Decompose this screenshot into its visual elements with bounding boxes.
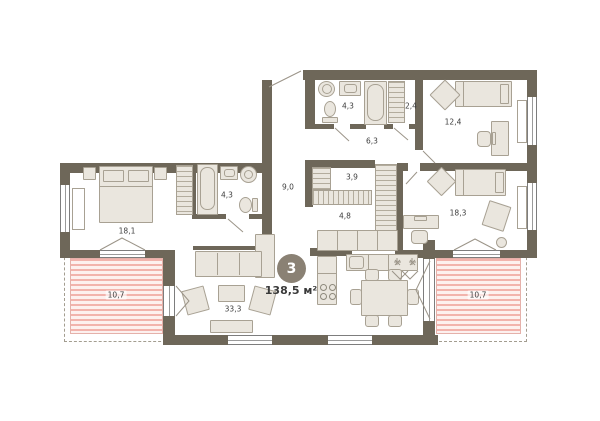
bathtub-basin	[200, 167, 215, 210]
radiator	[72, 188, 85, 230]
nightstand	[154, 167, 167, 180]
dining-chair	[388, 269, 402, 281]
room-label-storage: 2,4	[405, 102, 417, 111]
sofa-cushion-line	[217, 253, 218, 275]
pillow	[128, 170, 149, 182]
toilet-bowl	[324, 101, 336, 117]
pillow	[103, 170, 124, 182]
sofa	[195, 251, 262, 277]
cabinet-divider	[377, 231, 378, 250]
room-label-wardrobe: 3,9	[346, 173, 358, 182]
desk-chair	[477, 131, 491, 147]
storage-shelves	[388, 81, 405, 123]
balcony-door	[100, 250, 145, 258]
pillow	[495, 172, 504, 193]
armchair	[181, 285, 210, 315]
window	[60, 185, 70, 232]
blanket-line	[100, 186, 152, 187]
desk-chair	[411, 230, 428, 244]
floor-plan: 18,1 4,3 9,0 4,3 2,4 6,3 12,4 3,9 4,8 18…	[0, 0, 600, 421]
room-label-bedroom-3: 18,3	[450, 209, 467, 218]
room-label-balcony-right: 10,7	[468, 291, 489, 300]
dining-chair	[388, 315, 402, 327]
room-label-bedroom-2: 12,4	[445, 118, 462, 127]
monitor	[414, 216, 427, 221]
wall-segment	[415, 80, 423, 150]
room-label-bathroom-1: 4,3	[221, 191, 233, 200]
cabinet-divider	[357, 231, 358, 250]
room-label-hall: 4,8	[339, 212, 351, 221]
washing-machine-drum	[244, 170, 253, 179]
wall-segment	[305, 80, 315, 129]
room-label-living-room: 33,3	[225, 305, 242, 314]
wall-segment	[423, 321, 435, 345]
room-label-entry-hall: 9,0	[282, 183, 294, 192]
wall-segment	[145, 250, 175, 258]
balcony-door	[163, 286, 175, 316]
total-area-label: 138,5 м²	[252, 284, 330, 297]
nightstand	[83, 167, 96, 180]
wall-segment	[315, 124, 334, 129]
radiator	[517, 100, 527, 143]
sink-basin	[224, 169, 235, 177]
side-table	[496, 237, 507, 248]
blanket-line	[463, 170, 464, 195]
bathtub-basin	[367, 84, 384, 121]
toilet-tank	[322, 117, 338, 123]
dining-chair	[365, 269, 379, 281]
counter-divider	[368, 255, 369, 270]
balcony-door	[423, 259, 435, 321]
cabinet-divider	[337, 231, 338, 250]
window	[527, 97, 537, 145]
room-label-balcony-left: 10,7	[106, 291, 127, 300]
dining-chair	[350, 289, 362, 305]
rooms-count-badge: 3	[277, 254, 306, 283]
sink-basin	[344, 84, 357, 93]
washing-machine-drum	[322, 84, 332, 94]
toilet-tank	[252, 198, 258, 212]
cabinet-divider	[318, 273, 336, 274]
wall-segment	[170, 335, 438, 345]
wardrobe	[176, 165, 193, 215]
counter-divider	[388, 255, 389, 270]
room-label-corridor: 6,3	[366, 137, 378, 146]
blanket-line	[463, 82, 464, 106]
wall-segment	[397, 163, 408, 171]
wall-segment	[193, 246, 263, 250]
kitchen-sink	[349, 256, 364, 269]
balcony-door	[453, 250, 500, 258]
radiator	[517, 186, 527, 229]
wall-segment	[249, 214, 262, 219]
hanging-rail	[312, 190, 372, 205]
coffee-table	[218, 285, 245, 302]
monitor	[492, 132, 496, 145]
sofa-cushion-line	[239, 253, 240, 275]
dining-table	[361, 280, 408, 316]
dining-chair	[407, 289, 419, 305]
room-label-bedroom-1: 18,1	[119, 227, 136, 236]
armchair	[482, 200, 512, 232]
pillow	[500, 84, 509, 104]
stove-burner	[329, 293, 336, 300]
closet-shelves	[312, 167, 331, 190]
window	[328, 335, 372, 345]
window	[228, 335, 272, 345]
dining-chair	[365, 315, 379, 327]
rug	[427, 167, 457, 197]
tv-stand	[210, 320, 253, 333]
wall-segment	[67, 250, 100, 258]
room-label-bathroom-2: 4,3	[342, 102, 354, 111]
window	[527, 183, 537, 230]
wall-segment	[303, 70, 537, 80]
stove-burner	[329, 284, 336, 291]
wall-segment	[262, 80, 272, 245]
toilet-bowl	[239, 197, 252, 213]
